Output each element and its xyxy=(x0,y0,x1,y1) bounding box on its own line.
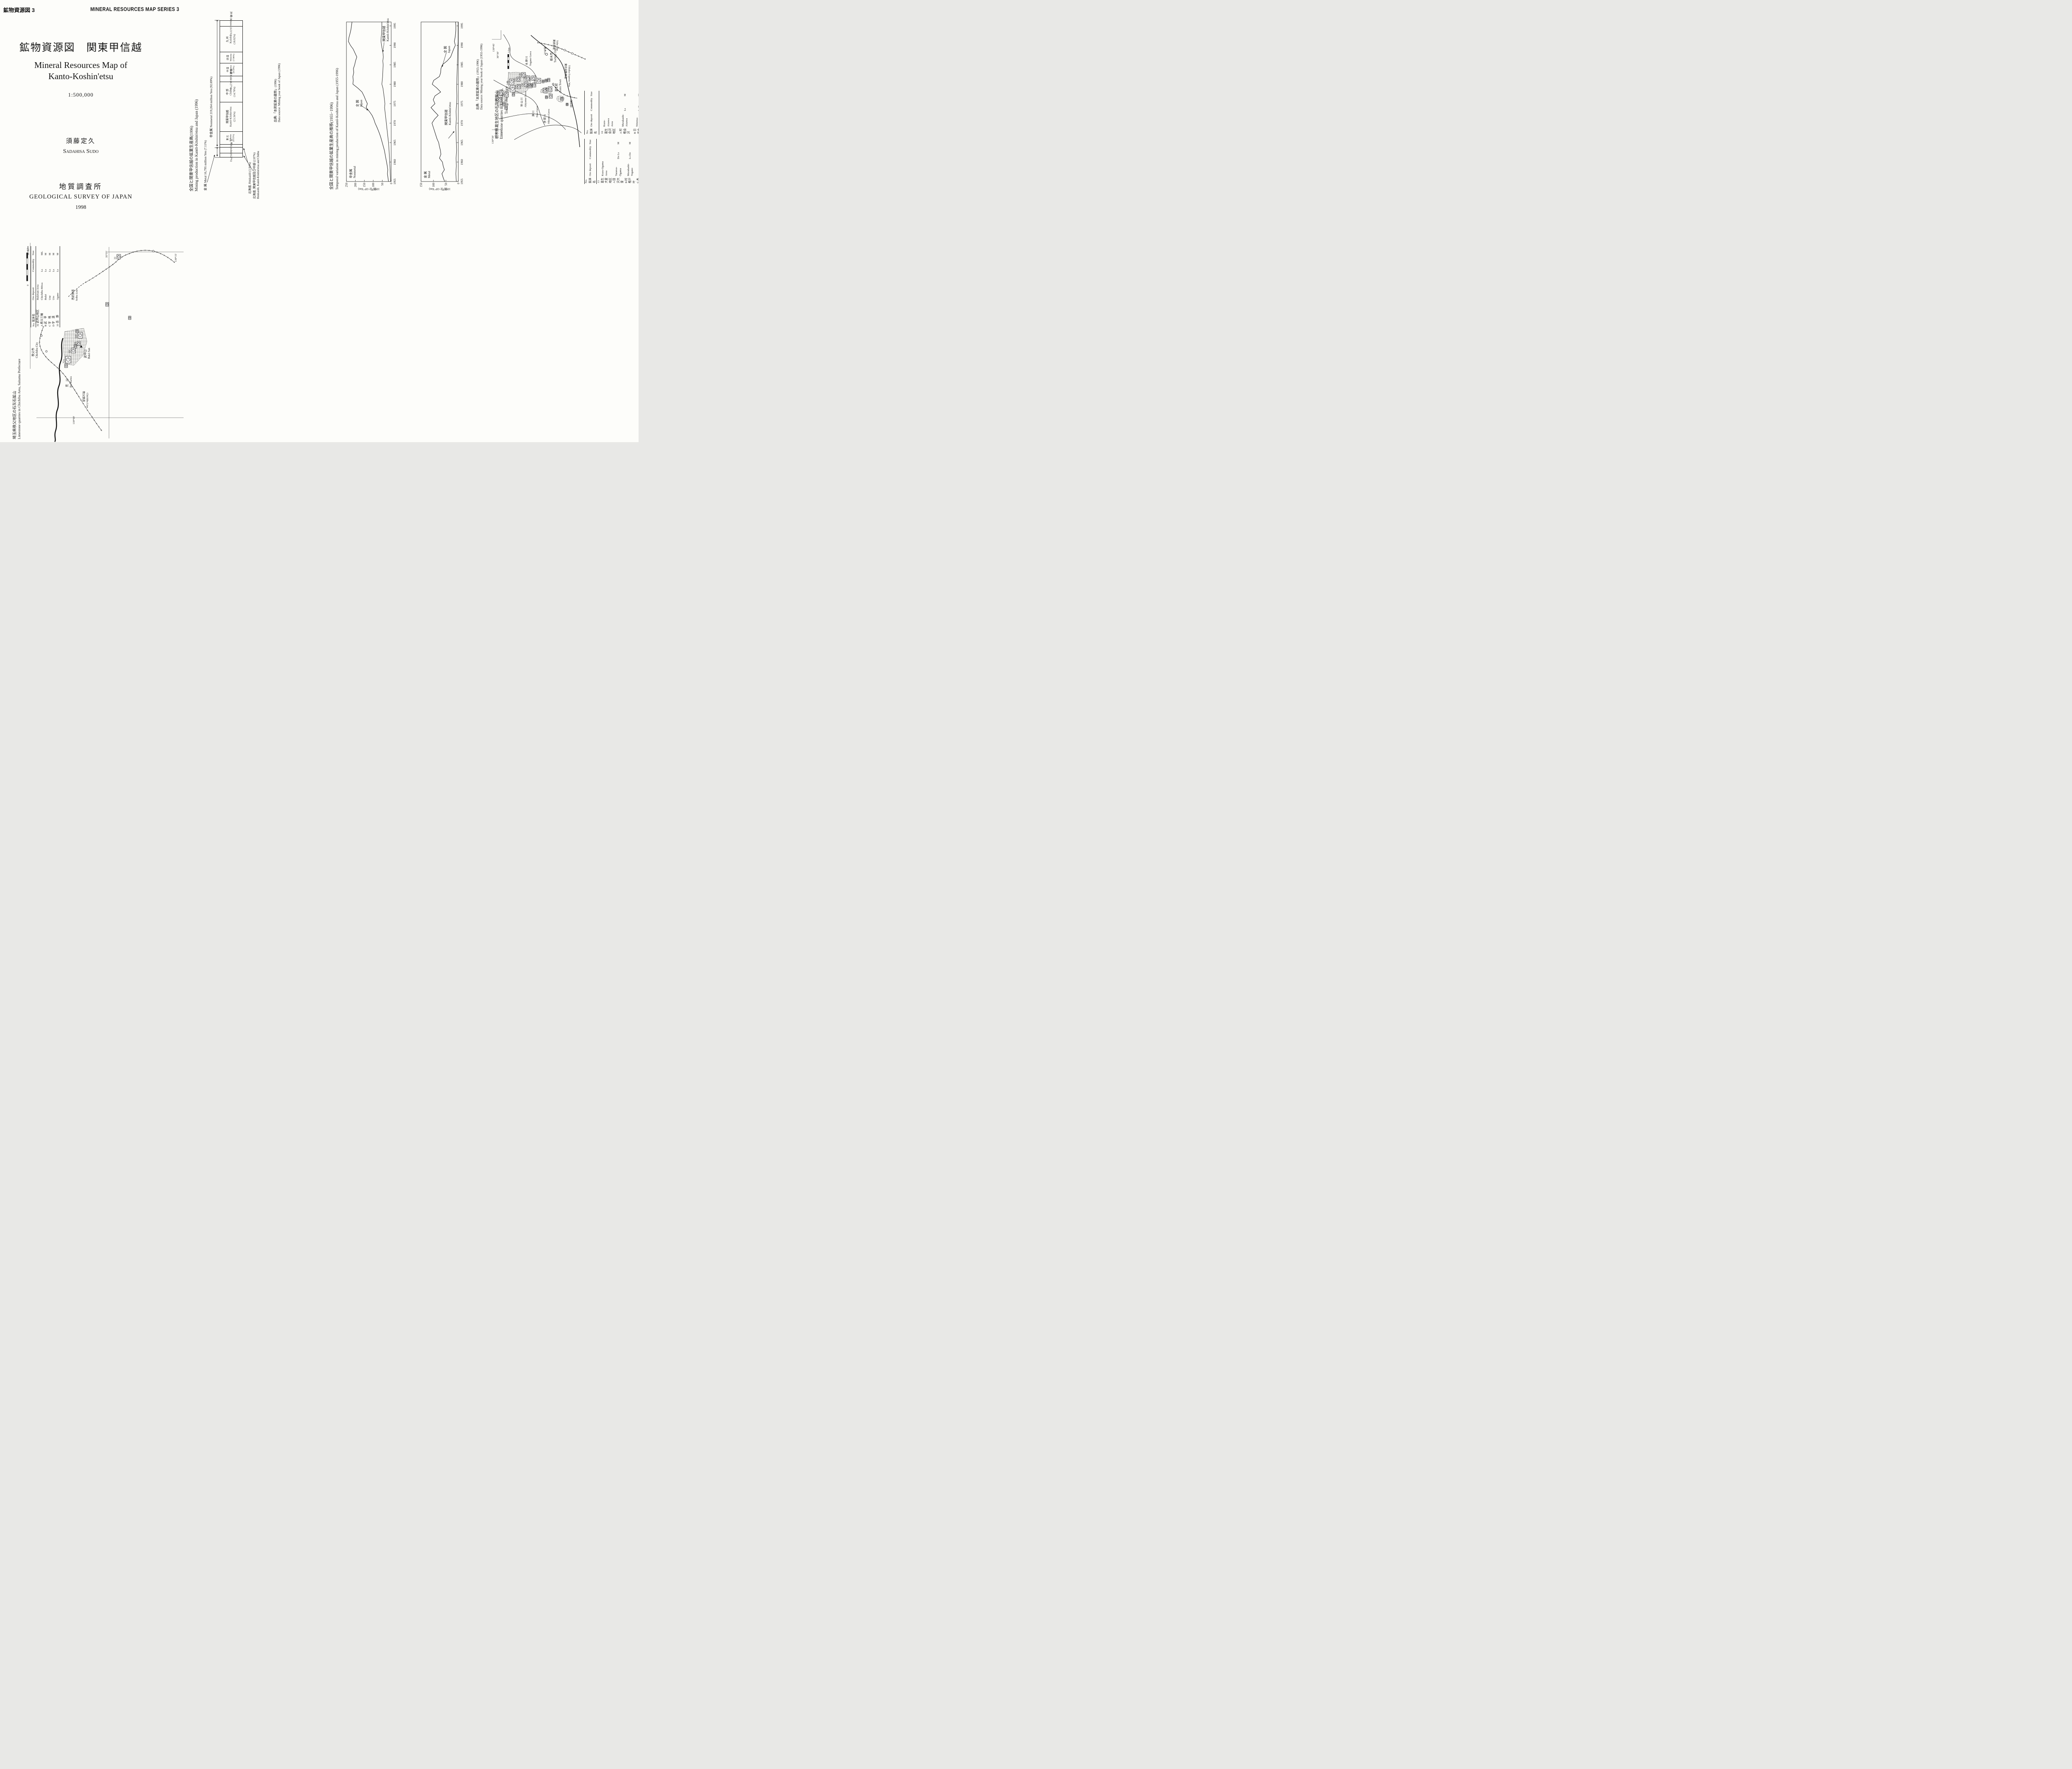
hikoma-gawa-label-en: Hikoma Gawa xyxy=(547,109,550,124)
table-cell: 33 吾 野 xyxy=(56,301,60,327)
chichibu-scale-label: 5 km xyxy=(27,246,29,252)
table-row: 13 葛生大釜地区Kuzu-Ogama Area xyxy=(597,139,613,184)
chichibu-line-label-en: Chichibu Line xyxy=(86,393,89,408)
table-header: Ore deposit xyxy=(31,273,36,301)
table-row: A 秩父三輪Chichibu-MiwaLsML xyxy=(40,246,44,327)
table-cell: Kuzu-Aizawa Area xyxy=(599,112,618,128)
nagano-gawa-label-en: Nagano Gawa xyxy=(529,51,532,66)
table-cell: M xyxy=(48,246,52,256)
ore-deposit-table-half: No. 鉱床名Ore depositCommoditySize16 葛生会沢地区… xyxy=(584,91,639,135)
quarry-label: 17A xyxy=(541,89,543,93)
quarry-symbol-17B: 17B xyxy=(546,87,552,92)
kuzu-coord-lat-bottom: 36°30′ xyxy=(495,129,498,136)
quarry-label: 13C xyxy=(496,98,498,102)
quarry-symbol-14A: 14A xyxy=(508,86,516,92)
table-row: A 田沢大釜Tazawa-ŌgamaDo LsM xyxy=(612,139,625,184)
chichibu-line-label-jp: 秩父鉄道 xyxy=(82,391,86,402)
sheet-number: 鉱物資源図 3 xyxy=(3,6,35,14)
table-header: No. 鉱床名 xyxy=(585,177,597,184)
ara-kawa-river xyxy=(55,338,63,442)
quarry-symbol-33: 33 xyxy=(114,254,121,259)
kuzu-town-label-jp: 葛生町 xyxy=(554,83,558,92)
table-cell: A 秩父三輪 xyxy=(40,301,44,327)
map-scale: 1:500,000 xyxy=(17,92,145,98)
temporal-source-en: Data source: Mining year book of Japan (… xyxy=(479,44,483,110)
production-figure-title-jp: 全国と関東甲信越の鉱業生産高(1996) xyxy=(190,99,195,191)
table-header: Ore deposit xyxy=(585,112,599,128)
table-cell: Bukōsan Area xyxy=(36,273,40,301)
table-cell: M xyxy=(612,139,625,145)
chichibu-deposit-table: No. 鉱床名Ore depositCommoditySize32 武甲山地区B… xyxy=(31,242,60,327)
kuzu-deposit-table: No. 鉱床名Ore depositCommoditySize13 葛生大釜地区… xyxy=(584,87,639,184)
quarry-symbol-13C: 13C xyxy=(496,97,502,102)
quarry-label: 15D xyxy=(524,76,526,81)
chichibu-quarry-symbols: 32D32B32C32A33 xyxy=(63,254,131,368)
table-cell: M xyxy=(56,246,60,256)
nagano-gawa-label-jp: 永 野 川 xyxy=(525,56,528,65)
chichibu-coord-lat-right: 35°55′ xyxy=(105,250,108,258)
expway-label-jp: 東北自動車道 xyxy=(564,63,567,79)
table-header: Commodity xyxy=(585,97,599,112)
kuzu-map: 139°45′ 36°30′ 36°30′ 139°30′ 5 km 0 永 野… xyxy=(491,10,586,191)
quarry-symbol xyxy=(566,103,568,106)
quarry-label: 15C xyxy=(514,77,517,82)
quarry-symbol xyxy=(65,364,68,368)
hikoma-gawa-label-jp: 彦 間 川 xyxy=(543,114,547,123)
table-cell: M xyxy=(632,91,639,97)
table-cell: A 田沢大釜 xyxy=(612,177,625,184)
table-cell: Tazawa-Ōgama xyxy=(612,160,625,177)
quarry-label: 16B xyxy=(530,83,533,87)
table-cell: Do Ls xyxy=(612,145,625,160)
kuzu-coord-lat-top: 36°30′ xyxy=(496,51,499,58)
table-cell: C 宇 根 xyxy=(48,301,52,327)
temporal-figure-title: 全国と関東甲信越の鉱業生産高の推移(1955−1996) Temporal va… xyxy=(330,68,339,190)
kuzu-coord-lon-bottom: 139°30′ xyxy=(491,135,494,144)
table-cell: B 村樫戸叶 xyxy=(625,177,637,184)
hikoma-gawa-river xyxy=(514,125,581,140)
table-cell xyxy=(599,97,618,112)
table-row: 33 吾 野AganoLsM xyxy=(56,246,60,327)
table-cell: 16 葛生会沢地区 xyxy=(599,128,618,135)
temporal-source: 出典:「本邦鉱業の趨勢」(1955-1996) Data source: Min… xyxy=(476,44,484,110)
quarry-label: 14B xyxy=(507,81,509,85)
table-row: A 村樫会沢Murakashi-AizawaLsM xyxy=(618,91,632,135)
table-cell: D 宇 遠 xyxy=(52,301,56,327)
table-cell: M xyxy=(625,139,637,145)
publisher-jp: 地質調査所 xyxy=(17,181,145,191)
chichibu-city-label-en: Chichibu City xyxy=(36,342,39,358)
quarry-symbol xyxy=(76,329,78,333)
table-header: Commodity xyxy=(585,145,597,160)
table-header: Ore deposit xyxy=(585,160,597,177)
map-title-en-1: Mineral Resources Map of xyxy=(17,60,145,70)
quarry-symbol xyxy=(106,302,109,306)
tobu-line-label-jp: 東武鉄道 xyxy=(552,39,556,50)
table-cell: Ls Do xyxy=(625,145,637,160)
buko-san-label-jp: 武甲山 xyxy=(83,349,87,358)
ara-kawa-label-jp: 荒 川 xyxy=(65,378,69,387)
ore-deposit-table-half: No. 鉱床名Ore depositCommoditySize32 武甲山地区B… xyxy=(31,246,60,327)
table-row: B 武 甲BukōLsM xyxy=(44,246,48,327)
quarry-symbol-32A: 32A xyxy=(63,356,71,363)
table-header: Size xyxy=(585,139,597,145)
table-header: No. 鉱床名 xyxy=(585,128,599,135)
quarry-label: 13B xyxy=(502,93,505,97)
ore-deposit-table-half: No. 鉱床名Ore depositCommoditySize13 葛生大釜地区… xyxy=(584,139,639,184)
quarry-symbol xyxy=(542,80,544,83)
akiyama-gawa-label-jp: 秋 山 川 xyxy=(520,97,523,106)
table-row: C 木村石灰KimurasekkaiDo LsM xyxy=(636,139,639,184)
table-row: 16 葛生会沢地区Kuzu-Aizawa Area xyxy=(599,91,618,135)
temporal-title-en: Temporal variation in mining production … xyxy=(335,68,339,190)
quarry-symbol-15A: 15A xyxy=(515,85,521,89)
table-cell: Ls xyxy=(56,256,60,273)
kuzu-coord-lon-top: 139°45′ xyxy=(492,43,495,52)
table-cell: Ls xyxy=(618,97,632,112)
quarry-label: 16A xyxy=(526,84,529,88)
tochigi-city-label-jp: 栃木市 xyxy=(549,52,553,61)
quarry-label: 16D xyxy=(534,79,537,84)
quarry-label: 15E xyxy=(522,83,524,87)
table-cell: Nittetsu-Aizawa xyxy=(632,112,639,128)
table-cell: 13 葛生大釜地区 xyxy=(597,177,613,184)
series-title: MINERAL RESOURCES MAP SERIES 3 xyxy=(90,7,179,12)
table-cell: Bukō xyxy=(44,273,48,301)
quarry-symbol xyxy=(545,96,547,99)
quarry-symbol xyxy=(561,97,563,100)
ara-kawa-label-en: Ara Kawa xyxy=(70,376,73,388)
table-cell: C 木村石灰 xyxy=(636,177,639,184)
table-cell: Uto xyxy=(52,273,56,301)
table-cell: B 武 甲 xyxy=(44,301,48,327)
quarry-label: 13A xyxy=(497,91,499,96)
table-cell: Chichibu-Miwa xyxy=(40,273,44,301)
chichibu-title-en: Limestone quarries in Chichibu Area, Sai… xyxy=(17,359,22,439)
table-cell: Ls Do xyxy=(632,97,639,112)
quarry-symbol xyxy=(74,345,77,348)
seibu-line-rail xyxy=(68,250,175,297)
table-cell: M xyxy=(636,139,639,145)
table-cell: 32 武甲山地区 xyxy=(36,301,40,327)
quarry-symbol xyxy=(545,79,547,82)
table-header: Size xyxy=(31,246,36,256)
table-cell: B 日鉄会沢 xyxy=(632,128,639,135)
map-sheet: 鉱物資源図 3 MINERAL RESOURCES MAP SERIES 3 鉱… xyxy=(0,0,639,442)
quarry-symbol-14B: 14B xyxy=(507,79,514,85)
table-cell: Do Ls xyxy=(636,145,639,160)
table-cell: M xyxy=(52,246,56,256)
quarry-symbol xyxy=(512,93,515,96)
table-cell xyxy=(597,139,613,145)
quarry-symbol xyxy=(505,106,507,109)
tanuma-town-label: 田沼町 xyxy=(570,99,573,107)
table-cell: Murakashi-Togano xyxy=(625,160,637,177)
hata-gawa-label-en: Hata Gawa xyxy=(536,106,539,117)
quarry-label: 16C xyxy=(529,77,532,81)
table-cell: M xyxy=(44,246,48,256)
quarry-label: 32A xyxy=(63,359,65,363)
chichibu-coord-lon-top: 139°15′ xyxy=(174,253,177,262)
publisher-en: GEOLOGICAL SURVEY OF JAPAN xyxy=(17,194,145,201)
akiyama-gawa-label-en: Akiyama Gawa xyxy=(524,91,527,107)
kuzu-town-label-en: Kuzu Town xyxy=(559,79,562,92)
quarry-label: 14A xyxy=(508,88,510,92)
quarry-label: 15A xyxy=(515,85,517,89)
seibu-line-label-en: Seibu Line xyxy=(75,289,78,301)
author-en: Sadahisa Sudo xyxy=(17,148,145,155)
quarry-symbol xyxy=(547,78,550,82)
quarry-label: 17B xyxy=(546,87,548,92)
table-cell xyxy=(597,145,613,160)
quarry-label: 32D xyxy=(75,334,78,339)
table-cell: Agano xyxy=(56,273,60,301)
chichibu-coord-lon-bottom: 139°00′ xyxy=(73,416,75,424)
expway-label-en: Tōhoku Express Way xyxy=(568,65,571,87)
table-row: B 日鉄会沢Nittetsu-AizawaLs DoM xyxy=(632,91,639,135)
table-header: Size xyxy=(585,91,599,97)
temporal-source-jp: 出典:「本邦鉱業の趨勢」(1955-1996) xyxy=(476,44,479,110)
table-cell xyxy=(36,256,40,273)
temporal-title-jp: 全国と関東甲信越の鉱業生産高の推移(1955−1996) xyxy=(330,68,335,190)
production-figure-title: 全国と関東甲信越の鉱業生産高(1996) Mining production i… xyxy=(190,99,200,191)
table-cell: M xyxy=(618,91,632,97)
author-jp: 須藤定久 xyxy=(17,136,145,145)
table-row: C 宇 根UneLsM xyxy=(48,246,52,327)
table-row: 32 武甲山地区Bukōsan Area xyxy=(36,246,40,327)
map-title-jp: 鉱物資源図 関東甲信越 xyxy=(17,39,145,54)
map-title-en-2: Kanto-Koshin'etsu xyxy=(17,71,145,82)
quarry-label: 33 xyxy=(114,257,117,259)
table-cell: Ls xyxy=(48,256,52,273)
seibu-line-label-jp: 西武鉄道 xyxy=(71,289,75,300)
chichibu-map-title: 埼玉県秩父地区の石灰石鉱山 Limestone quarries in Chic… xyxy=(12,359,22,439)
table-header: Commodity xyxy=(31,256,36,273)
table-cell xyxy=(36,246,40,256)
table-cell: Ls xyxy=(44,256,48,273)
table-cell: Kimurasekkai xyxy=(636,160,639,177)
tochigi-ic-label: 栃木I.C xyxy=(543,47,547,55)
quarry-symbol xyxy=(503,102,505,106)
table-cell: Murakashi-Aizawa xyxy=(618,112,632,128)
chichibu-scale-zero: 0 xyxy=(27,285,29,286)
title-block: 鉱物資源図 関東甲信越 Mineral Resources Map of Kan… xyxy=(17,39,145,211)
table-header: No. 鉱床名 xyxy=(31,301,36,327)
temporal-leaders xyxy=(344,17,472,199)
table-cell: Ls xyxy=(40,256,44,273)
quarry-symbol xyxy=(128,316,131,319)
buko-san-label-en: Bukō San xyxy=(88,348,91,359)
chichibu-city-label-jp: 秩父市 xyxy=(31,348,35,356)
quarry-label: 32C xyxy=(69,349,71,353)
chichibu-title-jp: 埼玉県秩父地区の石灰石鉱山 xyxy=(12,359,17,439)
hata-gawa-label-jp: 旗 川 xyxy=(532,111,535,116)
table-cell: A 村樫会沢 xyxy=(618,128,632,135)
table-cell: Kuzu-Ogama Area xyxy=(597,160,613,177)
table-row: B 村樫戸叶Murakashi-ToganoLs DoM xyxy=(625,139,637,184)
table-cell: Ls xyxy=(52,256,56,273)
quarry-label: 15B xyxy=(519,73,522,77)
table-row: D 宇 遠UtoLsM xyxy=(52,246,56,327)
table-cell: Une xyxy=(48,273,52,301)
publication-year: 1998 xyxy=(17,204,145,211)
bar-figure-leaders xyxy=(199,17,282,207)
table-cell xyxy=(599,91,618,97)
table-cell: ML xyxy=(40,246,44,256)
